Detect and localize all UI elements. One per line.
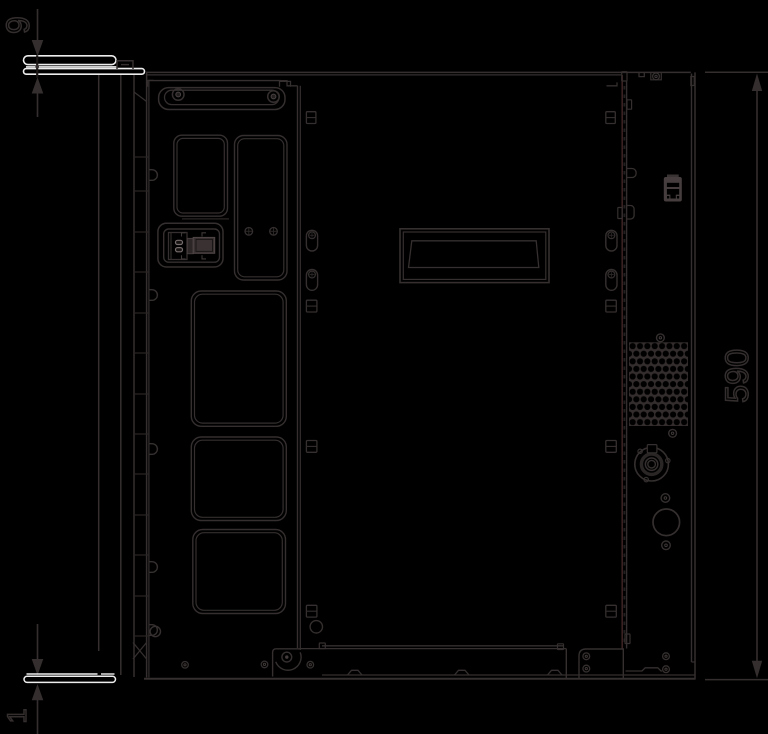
svg-text:1: 1: [2, 708, 32, 723]
svg-text:590: 590: [719, 349, 755, 403]
svg-text:9: 9: [0, 16, 36, 34]
